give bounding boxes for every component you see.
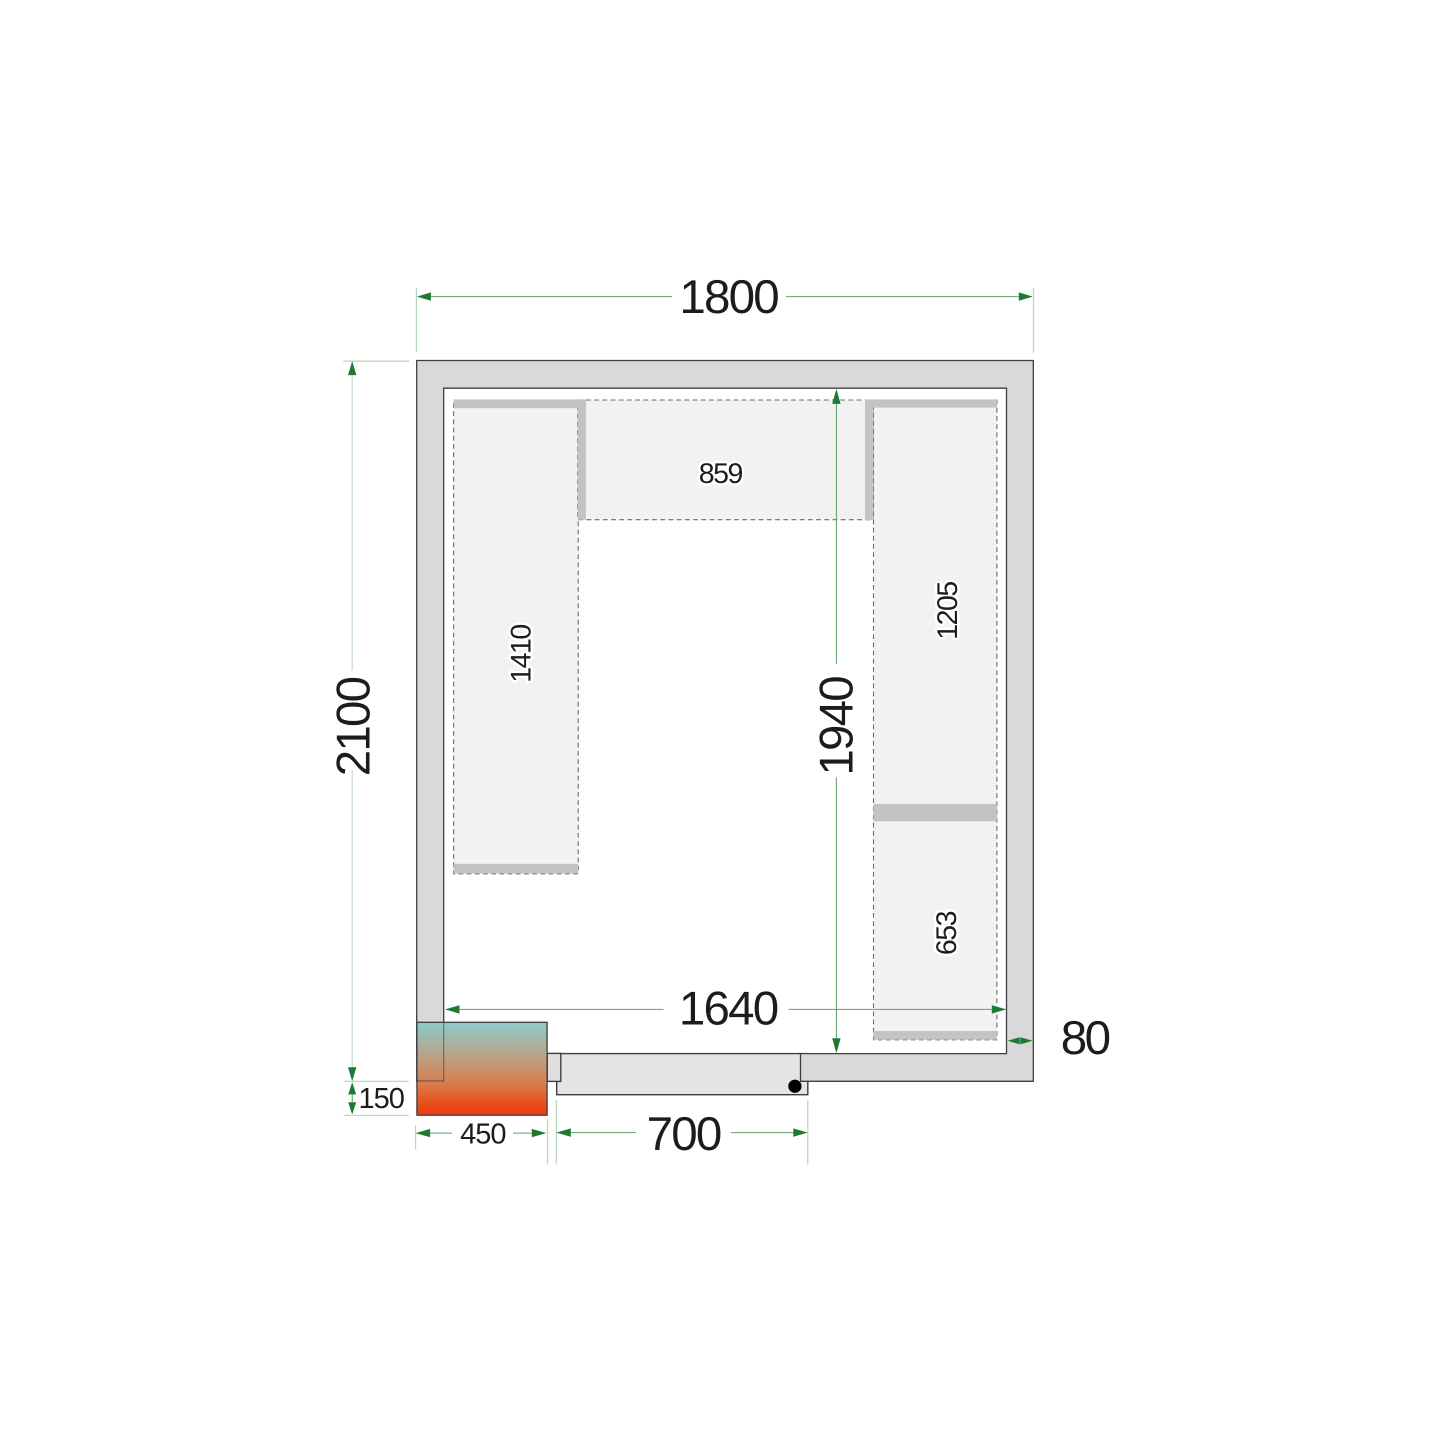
svg-text:859: 859	[699, 458, 743, 490]
svg-text:1205: 1205	[932, 582, 964, 640]
svg-text:1410: 1410	[505, 625, 537, 683]
svg-text:2100: 2100	[328, 677, 381, 776]
svg-text:80: 80	[1061, 1012, 1110, 1065]
svg-text:450: 450	[460, 1119, 505, 1151]
svg-text:700: 700	[647, 1108, 721, 1161]
svg-text:1940: 1940	[811, 677, 864, 776]
svg-text:1640: 1640	[679, 983, 778, 1036]
svg-text:150: 150	[359, 1083, 404, 1115]
svg-text:653: 653	[931, 911, 963, 955]
svg-text:1800: 1800	[679, 271, 778, 324]
